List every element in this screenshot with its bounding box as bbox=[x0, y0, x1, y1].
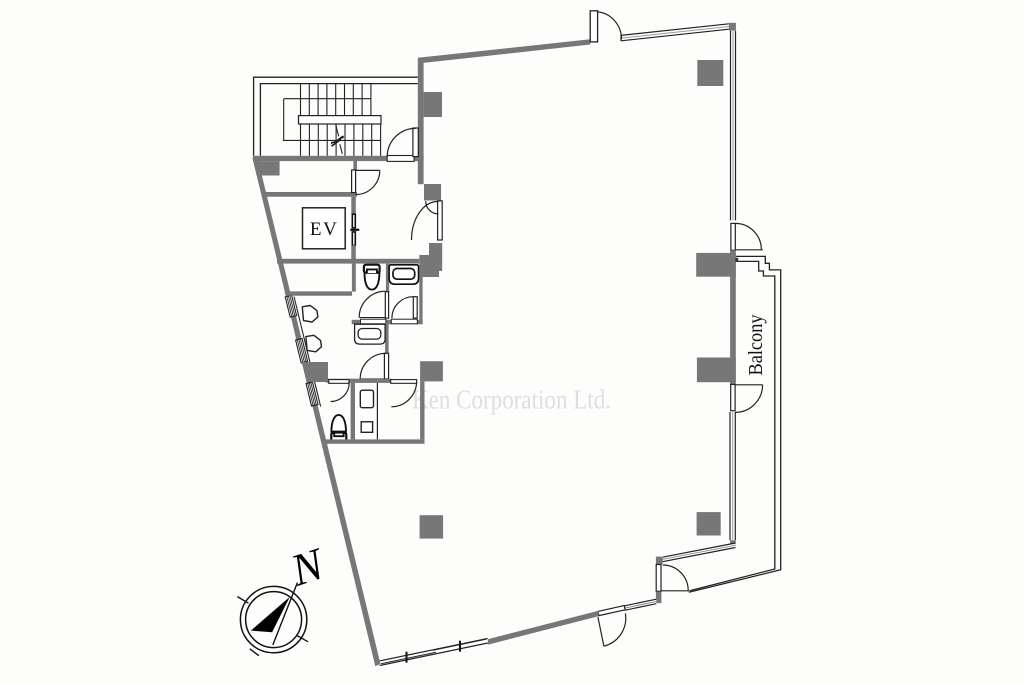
svg-text:N: N bbox=[284, 538, 332, 596]
svg-text:Ken Corporation Ltd.: Ken Corporation Ltd. bbox=[412, 385, 611, 415]
svg-text:EV: EV bbox=[310, 219, 339, 240]
svg-text:Balcony: Balcony bbox=[745, 315, 767, 376]
